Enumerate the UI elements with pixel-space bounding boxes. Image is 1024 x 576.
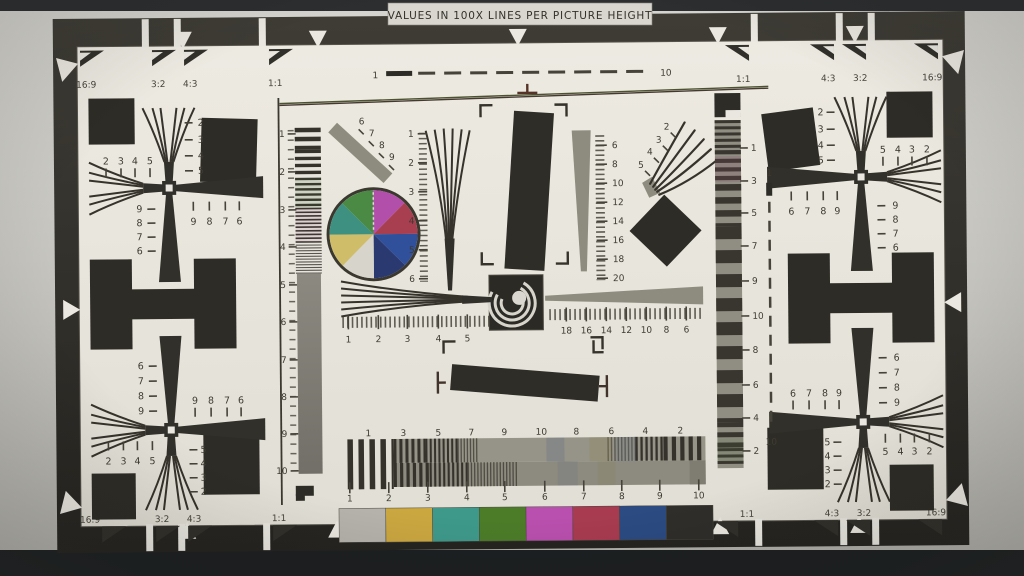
photo-of-resolution-test-chart: 16:93:24:31:1 1:14:33:216:9 16:93:24:31:… (0, 0, 1024, 576)
vignette-overlay (0, 0, 1024, 576)
